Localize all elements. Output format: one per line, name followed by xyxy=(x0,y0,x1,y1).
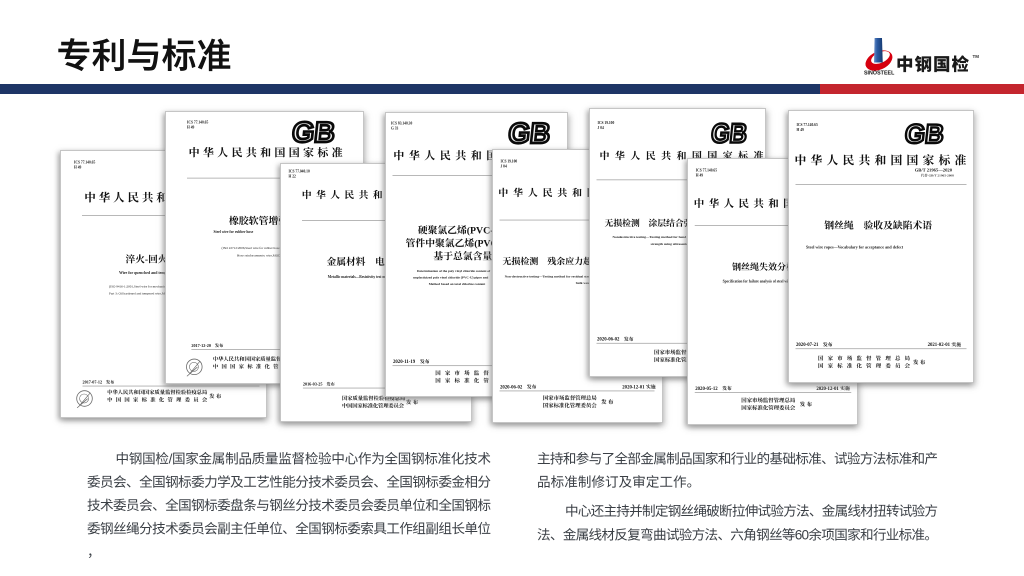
svg-text:2020-06-02: 2020-06-02 xyxy=(597,338,620,343)
svg-text:TM: TM xyxy=(973,54,980,59)
svg-text:GB: GB xyxy=(506,117,551,149)
svg-text:GB: GB xyxy=(903,119,945,149)
svg-text:J 04: J 04 xyxy=(598,126,604,130)
svg-text:-: - xyxy=(145,254,148,265)
svg-text:GB: GB xyxy=(710,119,749,149)
svg-text:(ISO 22712:2006,Steel wire for: (ISO 22712:2006,Steel wire for rubber ho… xyxy=(222,246,281,251)
svg-text:2020-07-21: 2020-07-21 xyxy=(796,343,819,348)
svg-text:/: / xyxy=(169,451,173,466)
svg-text:unplasticized poly vinyl chlor: unplasticized poly vinyl chloride (PVC-U… xyxy=(413,275,488,279)
svg-text:Steel wire ropes—Vocabulary fo: Steel wire ropes—Vocabulary for acceptan… xyxy=(806,244,904,249)
svg-text:2021-02-01: 2021-02-01 xyxy=(928,343,951,348)
svg-text:(ISO 9416-1:2001,Steel wire fo: (ISO 9416-1:2001,Steel wire for mechanic… xyxy=(109,284,168,289)
svg-text:GB/T 21965-2008: GB/T 21965-2008 xyxy=(928,174,954,178)
svg-text:2020-12-01: 2020-12-01 xyxy=(622,385,645,390)
svg-text:Method based on total chlorine: Method based on total chlorine content xyxy=(428,282,485,286)
svg-text:2017-07-12: 2017-07-12 xyxy=(83,379,103,384)
svg-text:2016-03-25: 2016-03-25 xyxy=(303,382,323,387)
svg-text:ICS 77.140.65: ICS 77.140.65 xyxy=(695,169,716,173)
svg-text:2020-06-02: 2020-06-02 xyxy=(500,385,523,390)
svg-text:60: 60 xyxy=(795,528,810,543)
svg-text:ICS 77.140.65: ICS 77.140.65 xyxy=(797,123,818,127)
svg-text:Determination of the poly viny: Determination of the poly vinyl chloride… xyxy=(417,268,491,272)
svg-text:ICS 77.040.10: ICS 77.040.10 xyxy=(289,170,310,174)
svg-text:H 22: H 22 xyxy=(289,175,296,179)
svg-text:Nondestructive testing—Testing: Nondestructive testing—Testing method fo… xyxy=(613,235,687,239)
svg-text:ICS 77.140.65: ICS 77.140.65 xyxy=(74,160,95,164)
svg-text:GB/T 21965—2020: GB/T 21965—2020 xyxy=(915,167,953,172)
svg-text:2017-12-20: 2017-12-20 xyxy=(191,342,211,347)
svg-text:2020-11-19: 2020-11-19 xyxy=(393,360,416,365)
svg-text:Hose reinforcements: wire,MOD): Hose reinforcements: wire,MOD) xyxy=(237,253,282,258)
svg-text:2020-05-12: 2020-05-12 xyxy=(695,387,718,392)
svg-text:J 04: J 04 xyxy=(500,164,506,168)
svg-text:strength using ultrasonics: strength using ultrasonics xyxy=(651,242,690,246)
svg-text:Part 3: Oil hardened and tempe: Part 3: Oil hardened and tempered wire,M… xyxy=(109,291,171,296)
svg-text:H 49: H 49 xyxy=(695,174,702,178)
svg-text:GB: GB xyxy=(290,117,336,149)
svg-text:ICS 19.100: ICS 19.100 xyxy=(500,159,517,163)
svg-text:2020-12-01: 2020-12-01 xyxy=(816,387,839,392)
svg-text:ICS 77.140.65: ICS 77.140.65 xyxy=(187,120,208,124)
svg-text:G 33: G 33 xyxy=(391,126,398,130)
svg-text:SINOSTEEL: SINOSTEEL xyxy=(864,70,895,76)
svg-text:Non-destructive testing—Testin: Non-destructive testing—Testing method f… xyxy=(505,274,593,278)
svg-text:ICS 19.100: ICS 19.100 xyxy=(598,121,615,125)
svg-text:ICS 83.140.30: ICS 83.140.30 xyxy=(391,121,412,125)
svg-text:H 49: H 49 xyxy=(187,125,194,129)
svg-text:H 49: H 49 xyxy=(74,165,81,169)
svg-text:H 49: H 49 xyxy=(797,128,804,132)
svg-text:Steel wire for rubber hose: Steel wire for rubber hose xyxy=(214,229,254,233)
